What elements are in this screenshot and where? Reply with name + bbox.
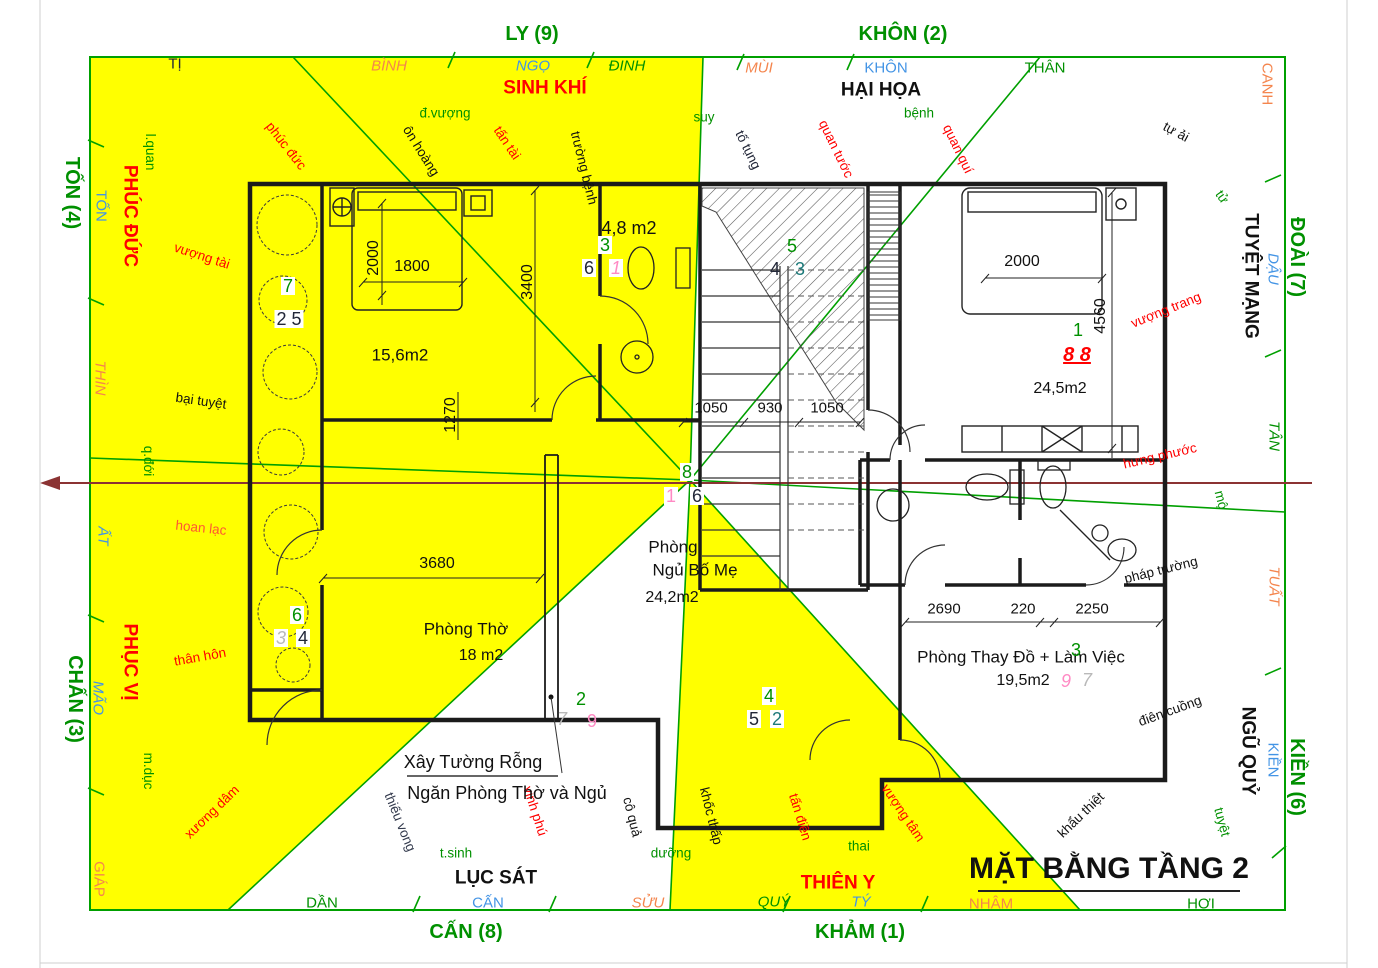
- star-5-stairs: 5: [787, 237, 797, 255]
- dim-2000-left: 2000: [366, 240, 382, 276]
- dim-3400: 3400: [520, 264, 536, 300]
- nightstand-right: [1106, 188, 1136, 220]
- zone-thien-y: THIÊN Y: [801, 874, 876, 893]
- compass-khon-2: KHÔN (2): [859, 24, 948, 44]
- dim-1050-b: 1050: [810, 401, 843, 416]
- compass-ton-4: TỐN (4): [62, 157, 82, 229]
- room-ngu-nho-area: 15,6m2: [372, 347, 429, 364]
- ring-kien: KIỀN: [1266, 742, 1281, 777]
- compass-chan-3: CHẤN (3): [65, 655, 85, 743]
- star-7-s: 7: [557, 710, 567, 728]
- zone-luc-sat: LỤC SÁT: [455, 869, 537, 888]
- toilet-mid-right: [1040, 466, 1066, 508]
- dim-1800: 1800: [394, 259, 430, 275]
- dim-4560: 4560: [1093, 298, 1109, 334]
- ring-mao: MÃO: [91, 681, 106, 715]
- star-3-w: 3: [274, 629, 288, 647]
- ring-ty: TÝ: [851, 895, 870, 910]
- ring-canh: CANH: [1260, 63, 1275, 106]
- ring-nham: NHÂM: [969, 897, 1013, 912]
- compass-kham-1: KHẢM (1): [815, 922, 905, 942]
- room-thay-do: Phòng Thay Đồ + Làm Việc: [917, 649, 1125, 666]
- compass-doai-7: ĐOÀI (7): [1287, 217, 1307, 297]
- star-1-center: 1: [664, 487, 678, 505]
- ring-quy: QUÝ: [758, 895, 791, 910]
- shower-corner: [1060, 510, 1110, 560]
- dim-930: 930: [757, 401, 782, 416]
- room-ngu-bo-me-area: 24,2m2: [645, 590, 698, 606]
- zone-ngu-quy: NGŨ QUỶ: [1239, 707, 1258, 796]
- room-ngu-bo-me-line1: Phòng: [648, 539, 697, 556]
- star-4-stairs: 4: [770, 260, 780, 278]
- star-2-s: 2: [576, 690, 586, 708]
- dim-220: 220: [1010, 602, 1035, 617]
- ring-hoi: HỢI: [1187, 897, 1215, 912]
- ring-dau: DẬU: [1266, 253, 1281, 285]
- star-9-se: 9: [1061, 672, 1071, 690]
- star-1-ne: 1: [1073, 321, 1083, 339]
- page-title: MẶT BẰNG TẦNG 2: [969, 854, 1249, 884]
- ring-giap: GIÁP: [92, 861, 107, 897]
- room-ngu-lon-area: 24,5m2: [1033, 381, 1086, 397]
- star-6-w: 6: [290, 606, 304, 624]
- ring-mui: MÙI: [745, 61, 773, 76]
- energy-suy: suy: [693, 110, 714, 124]
- energy-t-sinh: t.sinh: [440, 846, 472, 860]
- energy-d-vuong: đ.vượng: [420, 106, 471, 120]
- compass-kien-6: KIỀN (6): [1287, 738, 1307, 816]
- star-7-nw: 7: [281, 277, 295, 295]
- energy-m-duc: m.dục: [141, 753, 155, 790]
- star-2-door: 2: [770, 710, 784, 728]
- ring-can: CẤN: [472, 896, 504, 911]
- ring-dan: DẦN: [306, 896, 338, 911]
- room-phong-tho-area: 18 m2: [459, 648, 503, 664]
- star-3-wc: 3: [598, 236, 612, 254]
- ring-than: THÂN: [1025, 61, 1066, 76]
- star-6-wc: 6: [582, 259, 596, 277]
- zone-sinh-khi: SINH KHÍ: [503, 79, 586, 98]
- sink-mid-bath: [877, 489, 909, 521]
- ring-ngo: NGỌ: [516, 59, 550, 74]
- ring-thin: THÌN: [93, 361, 108, 396]
- energy-q-doi: q.đới: [141, 446, 155, 477]
- dim-1270: 1270: [443, 397, 459, 433]
- zone-phuc-duc: PHÚC ĐỨC: [121, 165, 140, 267]
- star-3-se: 3: [1071, 641, 1081, 659]
- star-9-s: 9: [587, 712, 597, 730]
- annotation-line2: Ngăn Phòng Thờ và Ngủ: [407, 784, 607, 802]
- star-5-door: 5: [747, 710, 761, 728]
- feng-shui-floor-plan: LY (9)KHÔN (2)TỐN (4)CHẤN (3)ĐOÀI (7)KIỀ…: [0, 0, 1378, 968]
- energy-duong: dưỡng: [651, 846, 691, 860]
- star-3-stairs: 3: [795, 260, 805, 278]
- compass-can-8: CẤN (8): [429, 922, 502, 942]
- star-4-door: 4: [762, 687, 776, 705]
- dim-2000-right: 2000: [1004, 254, 1040, 270]
- zone-phuc-vi: PHỤC VỊ: [121, 623, 140, 700]
- ring-khon: KHÔN: [864, 61, 907, 76]
- staircase: [702, 188, 900, 590]
- star-8-8-ne: 8 8: [1063, 345, 1091, 365]
- energy-benh: bệnh: [904, 106, 934, 120]
- dim-1050-a: 1050: [694, 401, 727, 416]
- zone-tuyet-mang: TUYỆT MẠNG: [1242, 213, 1261, 339]
- compass-ly-9: LY (9): [505, 24, 558, 44]
- ring-binh: BÌNH: [371, 59, 407, 74]
- ring-at: ẤT: [96, 526, 111, 545]
- ring-tan: TÂN: [1267, 421, 1282, 451]
- star-7-se: 7: [1082, 671, 1092, 689]
- ring-suu: SỬU: [632, 896, 665, 911]
- bed-northeast: [962, 188, 1102, 314]
- room-thay-do-area: 19,5m2: [996, 673, 1049, 689]
- star-8-center: 8: [680, 463, 694, 481]
- energy-mo: mộ: [1212, 489, 1230, 511]
- annotation-line1: Xây Tường Rỗng: [404, 753, 543, 771]
- wardrobe-hangers: [868, 192, 900, 320]
- room-ngu-bo-me-line2: Ngủ Bố Mẹ: [652, 562, 737, 579]
- star-6-center: 6: [690, 487, 704, 505]
- dim-3680: 3680: [419, 556, 455, 572]
- energy-l-quan: l.quan: [143, 134, 157, 171]
- zone-hai-hoa: HẠI HỌA: [841, 81, 921, 100]
- dim-2250: 2250: [1075, 602, 1108, 617]
- ring-ton: TỐN: [94, 190, 109, 222]
- star-4-w: 4: [296, 629, 310, 647]
- ring-ti: TỊ: [168, 57, 181, 72]
- star-2-5-nw: 2 5: [274, 310, 303, 328]
- energy-thai: thai: [848, 839, 870, 853]
- room-phong-tho: Phòng Thờ: [424, 621, 509, 638]
- star-1-wc: 1: [609, 259, 623, 277]
- ring-tuat: TUẤT: [1267, 566, 1282, 605]
- ring-dinh: ĐINH: [609, 59, 646, 74]
- dim-2690: 2690: [927, 602, 960, 617]
